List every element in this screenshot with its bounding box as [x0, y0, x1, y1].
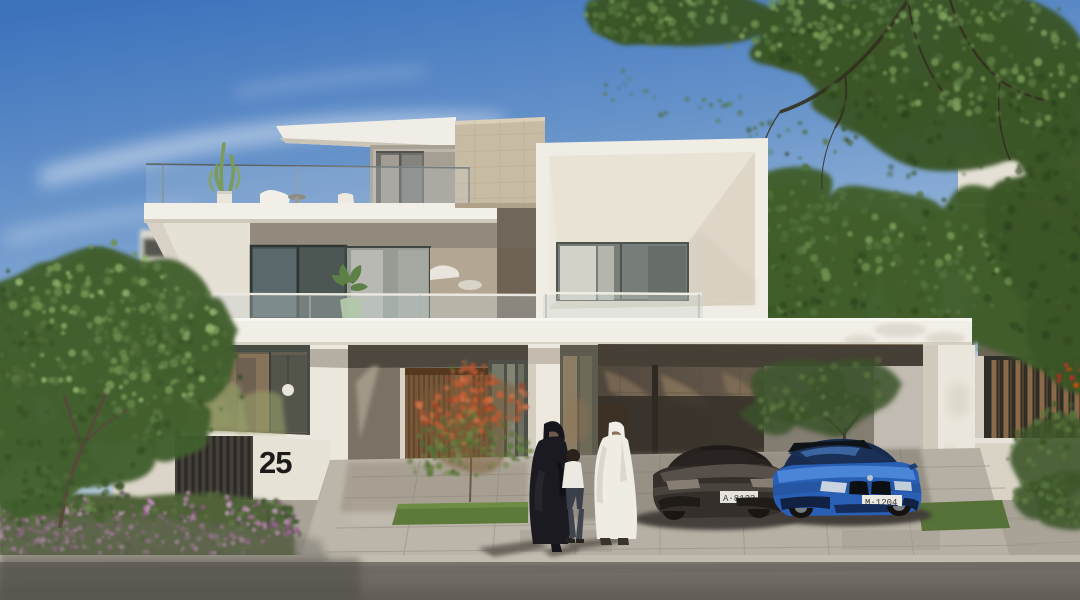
svg-text:25: 25 — [259, 445, 292, 480]
